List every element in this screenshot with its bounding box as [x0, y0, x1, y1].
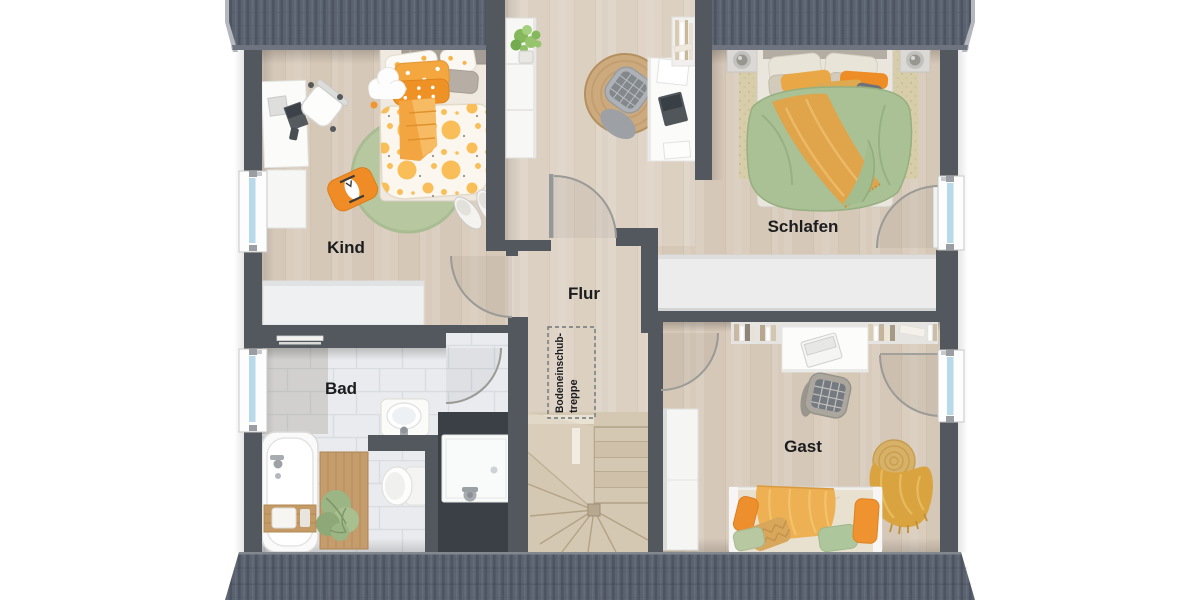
svg-text:Schlafen: Schlafen	[768, 217, 839, 236]
svg-text:Gast: Gast	[784, 437, 822, 456]
svg-text:Kind: Kind	[327, 238, 365, 257]
svg-text:Bad: Bad	[325, 379, 357, 398]
svg-text:Flur: Flur	[568, 284, 600, 303]
